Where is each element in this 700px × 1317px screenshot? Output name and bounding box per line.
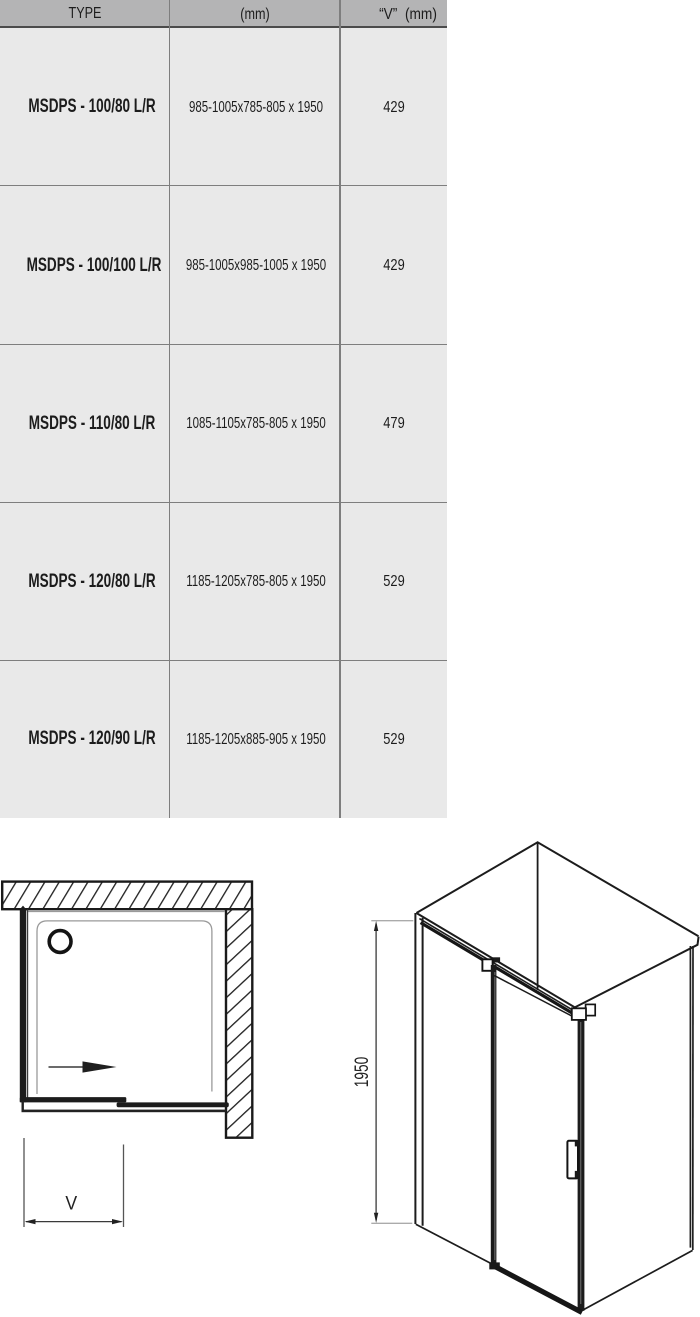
svg-text:V: V (65, 1194, 77, 1215)
svg-text:1950: 1950 (352, 1057, 373, 1088)
